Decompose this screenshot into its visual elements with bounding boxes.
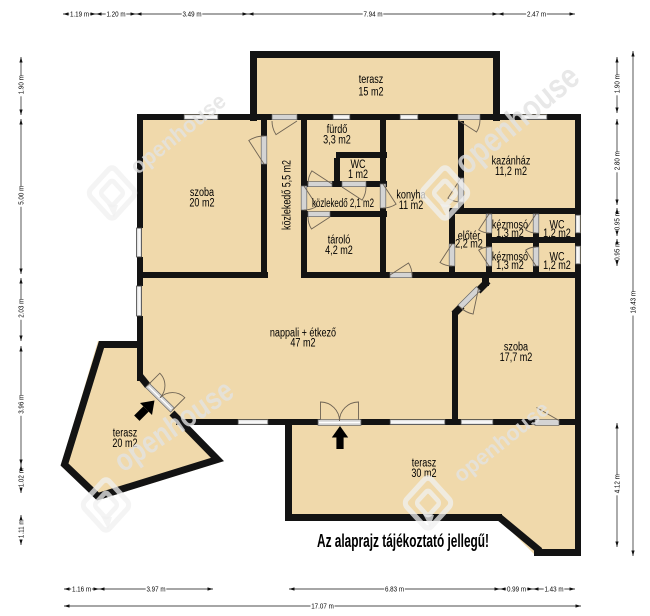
svg-text:2.03 m: 2.03 m [18,299,26,318]
svg-text:közlekedő 5,5 m2: közlekedő 5,5 m2 [282,160,294,230]
svg-text:1.02 m: 1.02 m [18,468,26,487]
svg-text:1 m2: 1 m2 [348,169,368,181]
svg-text:3.49 m: 3.49 m [182,11,201,19]
svg-text:terasz: terasz [359,74,384,86]
svg-text:6.83 m: 6.83 m [385,586,404,594]
svg-text:47 m2: 47 m2 [290,337,315,349]
svg-text:0.95 m: 0.95 m [614,211,622,230]
svg-text:3.97 m: 3.97 m [146,586,165,594]
svg-text:1,3 m2: 1,3 m2 [496,228,524,240]
svg-text:1.43 m: 1.43 m [544,586,563,594]
svg-text:1.16 m: 1.16 m [72,586,91,594]
svg-text:15 m2: 15 m2 [358,87,383,99]
svg-text:2.80 m: 2.80 m [614,151,622,170]
svg-text:1.11 m: 1.11 m [18,519,26,538]
svg-text:0.99 m: 0.99 m [507,586,526,594]
svg-text:1.90 m: 1.90 m [614,74,622,93]
svg-text:4,2 m2: 4,2 m2 [325,245,353,257]
svg-text:2.47 m: 2.47 m [527,11,546,19]
svg-text:1,3 m2: 1,3 m2 [496,260,524,272]
svg-text:1,2 m2: 1,2 m2 [543,260,571,272]
svg-text:2,2 m2: 2,2 m2 [455,239,483,251]
svg-text:1.90 m: 1.90 m [18,75,26,94]
svg-text:1.19 m: 1.19 m [70,11,89,19]
svg-text:közlekedő 2,1 m2: közlekedő 2,1 m2 [312,198,374,210]
svg-text:1.20 m: 1.20 m [106,11,125,19]
svg-text:4.12 m: 4.12 m [614,474,622,493]
svg-text:5.00 m: 5.00 m [18,186,26,205]
svg-text:16.43 m: 16.43 m [630,291,638,314]
svg-text:1,2 m2: 1,2 m2 [543,228,571,240]
svg-text:3,3 m2: 3,3 m2 [323,135,351,147]
svg-text:11,2 m2: 11,2 m2 [495,166,527,178]
svg-text:3.96 m: 3.96 m [18,395,26,414]
svg-text:Az alaprajz tájékoztató jelleg: Az alaprajz tájékoztató jellegű! [317,531,489,551]
svg-text:17,7 m2: 17,7 m2 [500,352,533,364]
svg-text:20 m2: 20 m2 [189,197,214,209]
svg-text:17.07 m: 17.07 m [311,603,334,611]
svg-text:7.94 m: 7.94 m [363,11,382,19]
svg-text:11 m2: 11 m2 [399,200,424,212]
